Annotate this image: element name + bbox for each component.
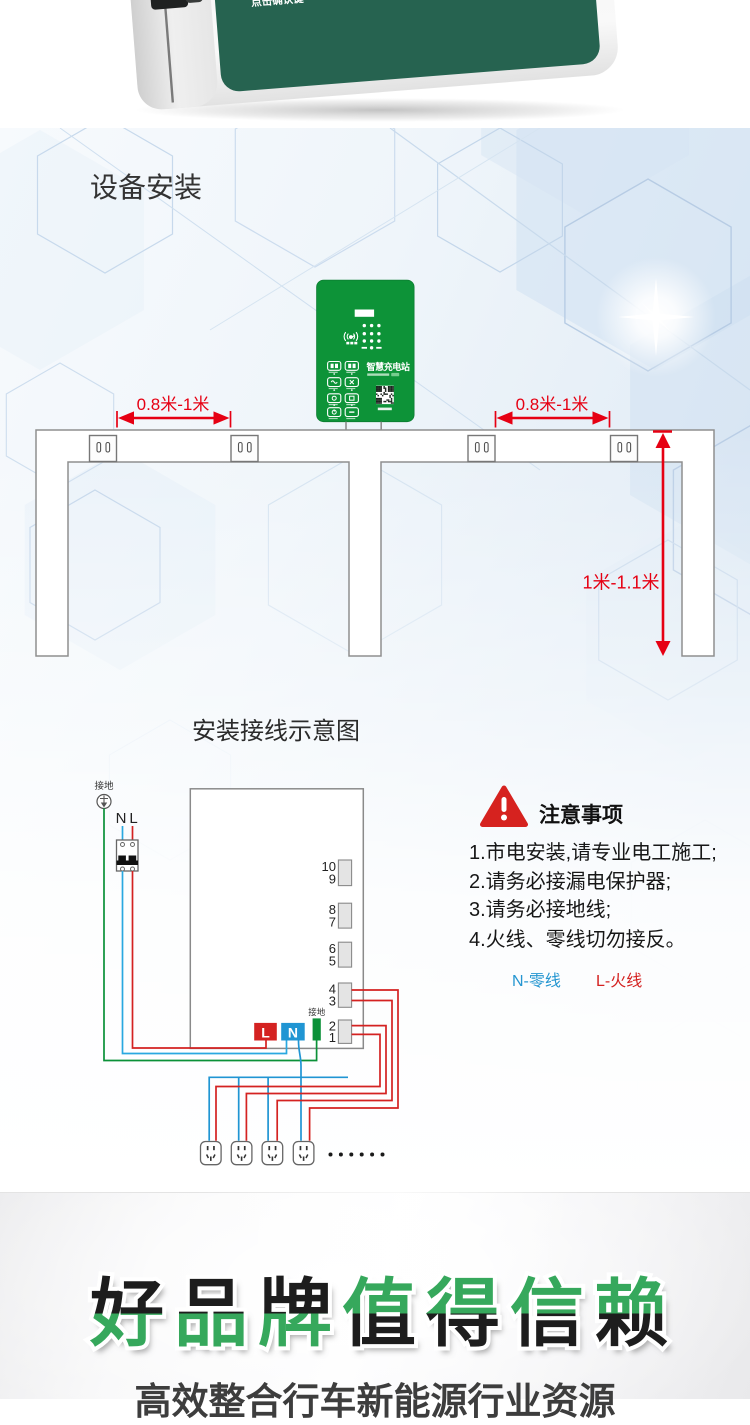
svg-text:N: N — [288, 1025, 298, 1041]
svg-text:L: L — [129, 810, 137, 827]
svg-text:3.请务必接地线;: 3.请务必接地线; — [469, 898, 611, 921]
svg-text:7: 7 — [329, 914, 336, 929]
svg-text:L: L — [261, 1025, 270, 1041]
svg-text:0.8米-1米: 0.8米-1米 — [516, 395, 589, 414]
svg-text:接地: 接地 — [308, 1007, 326, 1017]
svg-text:5: 5 — [329, 953, 336, 968]
svg-text:1米-1.1米: 1米-1.1米 — [582, 573, 659, 593]
svg-text:N-零线: N-零线 — [512, 972, 561, 990]
svg-text:0.8米-1米: 0.8米-1米 — [137, 395, 210, 414]
svg-text:N: N — [116, 810, 127, 827]
svg-text:9: 9 — [329, 872, 336, 887]
svg-text:安装接线示意图: 安装接线示意图 — [192, 718, 360, 745]
svg-text:1.市电安装,请专业电工施工;: 1.市电安装,请专业电工施工; — [469, 841, 717, 864]
svg-text:智慧充电站: 智慧充电站 — [367, 361, 410, 372]
svg-text:接地: 接地 — [94, 780, 114, 792]
svg-text:L-火线: L-火线 — [596, 972, 642, 990]
svg-text:注意事项: 注意事项 — [539, 803, 623, 827]
svg-text:4.火线、零线切勿接反。: 4.火线、零线切勿接反。 — [469, 928, 686, 951]
svg-text:设备安装: 设备安装 — [90, 172, 202, 203]
svg-text:3: 3 — [329, 994, 336, 1009]
svg-text:2.请务必接漏电保护器;: 2.请务必接漏电保护器; — [469, 870, 671, 893]
svg-text:1: 1 — [329, 1030, 336, 1045]
